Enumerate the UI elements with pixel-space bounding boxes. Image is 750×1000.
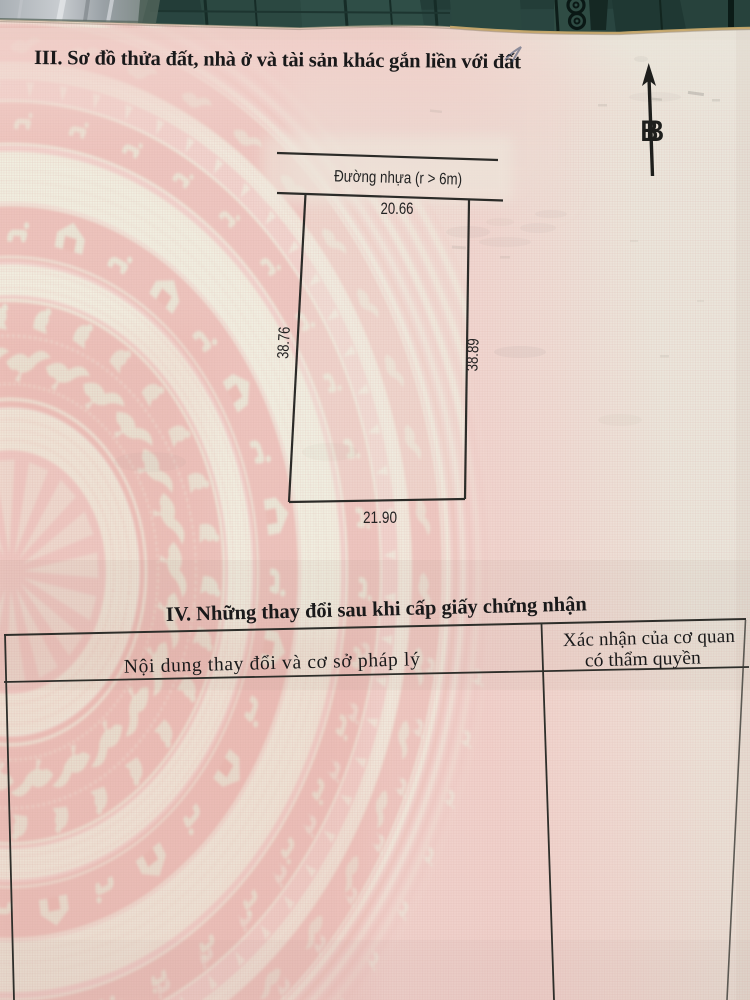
svg-text:21.90: 21.90 [363, 509, 397, 527]
svg-text:38.76: 38.76 [274, 326, 294, 359]
svg-text:20.66: 20.66 [381, 200, 414, 218]
svg-text:38.89: 38.89 [463, 338, 482, 372]
svg-text:III. Sơ đồ thửa đất, nhà ở và: III. Sơ đồ thửa đất, nhà ở và tài sản kh… [34, 47, 521, 73]
svg-text:Đường nhựa (r > 6m): Đường nhựa (r > 6m) [334, 167, 462, 188]
svg-text:Xác nhận của cơ quan: Xác nhận của cơ quan [563, 626, 736, 651]
svg-text:B: B [646, 114, 664, 148]
svg-text:có thẩm quyền: có thẩm quyền [585, 648, 702, 672]
